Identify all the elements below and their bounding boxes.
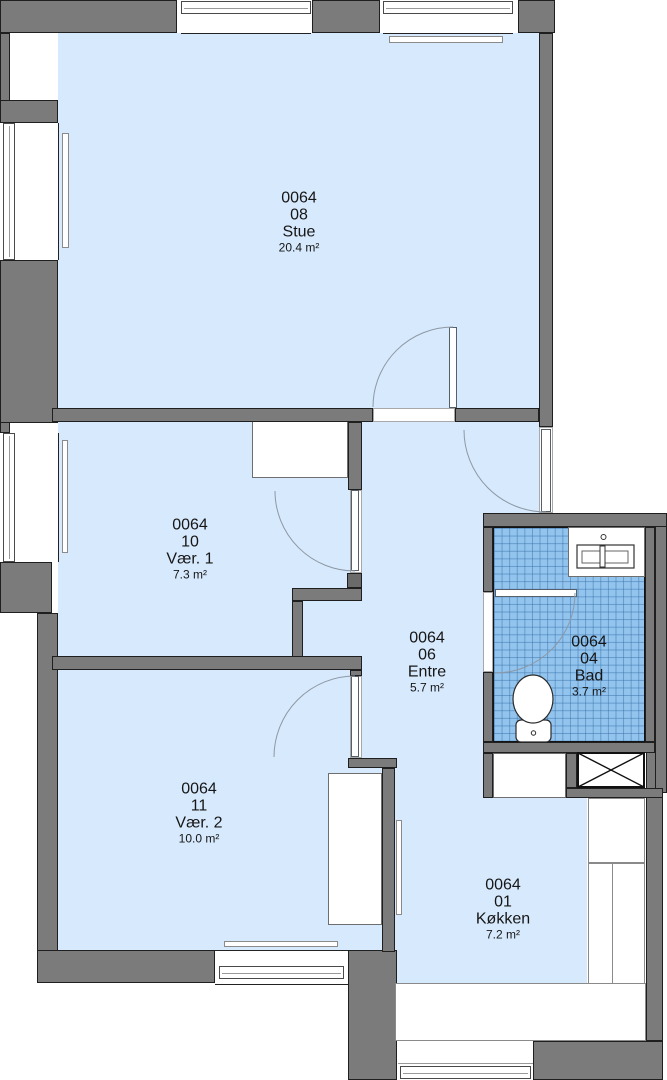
- closet-vaer1: [252, 422, 348, 478]
- window: [3, 123, 15, 260]
- floor-plan: 0064 08 Stue 20.4 m² 0064 10 Vær. 1 7.3 …: [0, 0, 667, 1080]
- wall: [455, 408, 539, 422]
- room-name: Vær. 1: [166, 551, 213, 568]
- wall: [0, 100, 58, 123]
- wall: [0, 260, 58, 423]
- window: [383, 1, 513, 14]
- room-name: Stue: [279, 224, 320, 241]
- room-area: 3.7 m²: [571, 685, 607, 699]
- closet-vaer2: [328, 773, 382, 925]
- room-number: 08: [279, 207, 320, 224]
- window-sill: [181, 14, 311, 34]
- wall: [292, 601, 303, 658]
- radiator: [62, 440, 68, 553]
- wall: [292, 588, 362, 601]
- room-number: 10: [166, 534, 213, 551]
- wall: [645, 527, 655, 742]
- radiator: [396, 820, 402, 915]
- wall: [0, 33, 10, 101]
- wall: [655, 513, 667, 793]
- wall: [312, 0, 380, 33]
- window: [219, 966, 344, 979]
- room-unit: 0064: [175, 781, 222, 798]
- entre-floor-upper: [362, 422, 539, 514]
- wall: [566, 753, 577, 788]
- door-leaf-bad: [495, 589, 577, 597]
- vent-shaft-symbol: [577, 752, 645, 788]
- wall: [348, 422, 362, 490]
- wall: [382, 768, 395, 952]
- window: [400, 1066, 531, 1079]
- room-number: 11: [175, 798, 222, 815]
- door-leaf-stue: [449, 327, 457, 408]
- room-area: 7.2 m²: [476, 928, 530, 942]
- room-unit: 0064: [279, 190, 320, 207]
- wall: [0, 0, 177, 33]
- cabinet-below-bath: [493, 753, 566, 798]
- room-name: Bad: [571, 668, 607, 685]
- wall: [518, 0, 555, 33]
- entre-niche-floor: [303, 598, 362, 658]
- room-label-vaer2: 0064 11 Vær. 2 10.0 m²: [175, 781, 222, 846]
- wall: [483, 527, 493, 592]
- door-opening-stue: [373, 408, 455, 422]
- window: [3, 433, 15, 562]
- room-unit: 0064: [408, 630, 446, 647]
- room-area: 5.7 m²: [408, 681, 446, 695]
- room-unit: 0064: [166, 517, 213, 534]
- wall: [347, 573, 362, 588]
- room-label-bad: 0064 04 Bad 3.7 m²: [571, 634, 607, 699]
- room-name: Køkken: [476, 911, 530, 928]
- door-leaf-vaer1: [351, 490, 359, 571]
- room-unit: 0064: [571, 634, 607, 651]
- room-number: 01: [476, 894, 530, 911]
- door-leaf-vaer2: [351, 676, 359, 757]
- window: [181, 1, 311, 14]
- room-name: Entre: [408, 664, 446, 681]
- room-label-vaer1: 0064 10 Vær. 1 7.3 m²: [166, 517, 213, 582]
- wall: [483, 672, 493, 742]
- wall: [483, 513, 667, 527]
- wall: [566, 788, 663, 798]
- radiator: [224, 941, 338, 947]
- kitchen-counter-top: [588, 798, 645, 863]
- room-area: 10.0 m²: [175, 832, 222, 846]
- wall: [533, 1041, 663, 1080]
- wall: [52, 408, 373, 422]
- room-label-stue: 0064 08 Stue 20.4 m²: [279, 190, 320, 255]
- room-number: 04: [571, 651, 607, 668]
- room-label-koekken: 0064 01 Køkken 7.2 m²: [476, 877, 530, 942]
- radiator: [62, 133, 69, 248]
- door-opening-bad: [483, 592, 493, 672]
- wall: [348, 950, 397, 1080]
- room-name: Vær. 2: [175, 815, 222, 832]
- radiator: [389, 36, 503, 43]
- window-sill: [15, 433, 59, 562]
- wall: [483, 753, 493, 798]
- wall: [0, 422, 10, 433]
- room-number: 06: [408, 647, 446, 664]
- kitchen-floor: [395, 768, 587, 983]
- room-area: 20.4 m²: [279, 241, 320, 255]
- wall: [52, 656, 362, 670]
- wall: [37, 950, 215, 983]
- room-area: 7.3 m²: [166, 568, 213, 582]
- wall: [0, 562, 52, 613]
- window-sill: [15, 123, 59, 260]
- kitchen-counter-bottom: [395, 983, 646, 1041]
- window-sill: [383, 14, 513, 34]
- wall: [539, 33, 553, 427]
- bathroom-sink-cabinet: [568, 527, 645, 577]
- wall: [348, 758, 397, 768]
- door-leaf-entrance: [541, 429, 551, 512]
- room-unit: 0064: [476, 877, 530, 894]
- room-label-entre: 0064 06 Entre 5.7 m²: [408, 630, 446, 695]
